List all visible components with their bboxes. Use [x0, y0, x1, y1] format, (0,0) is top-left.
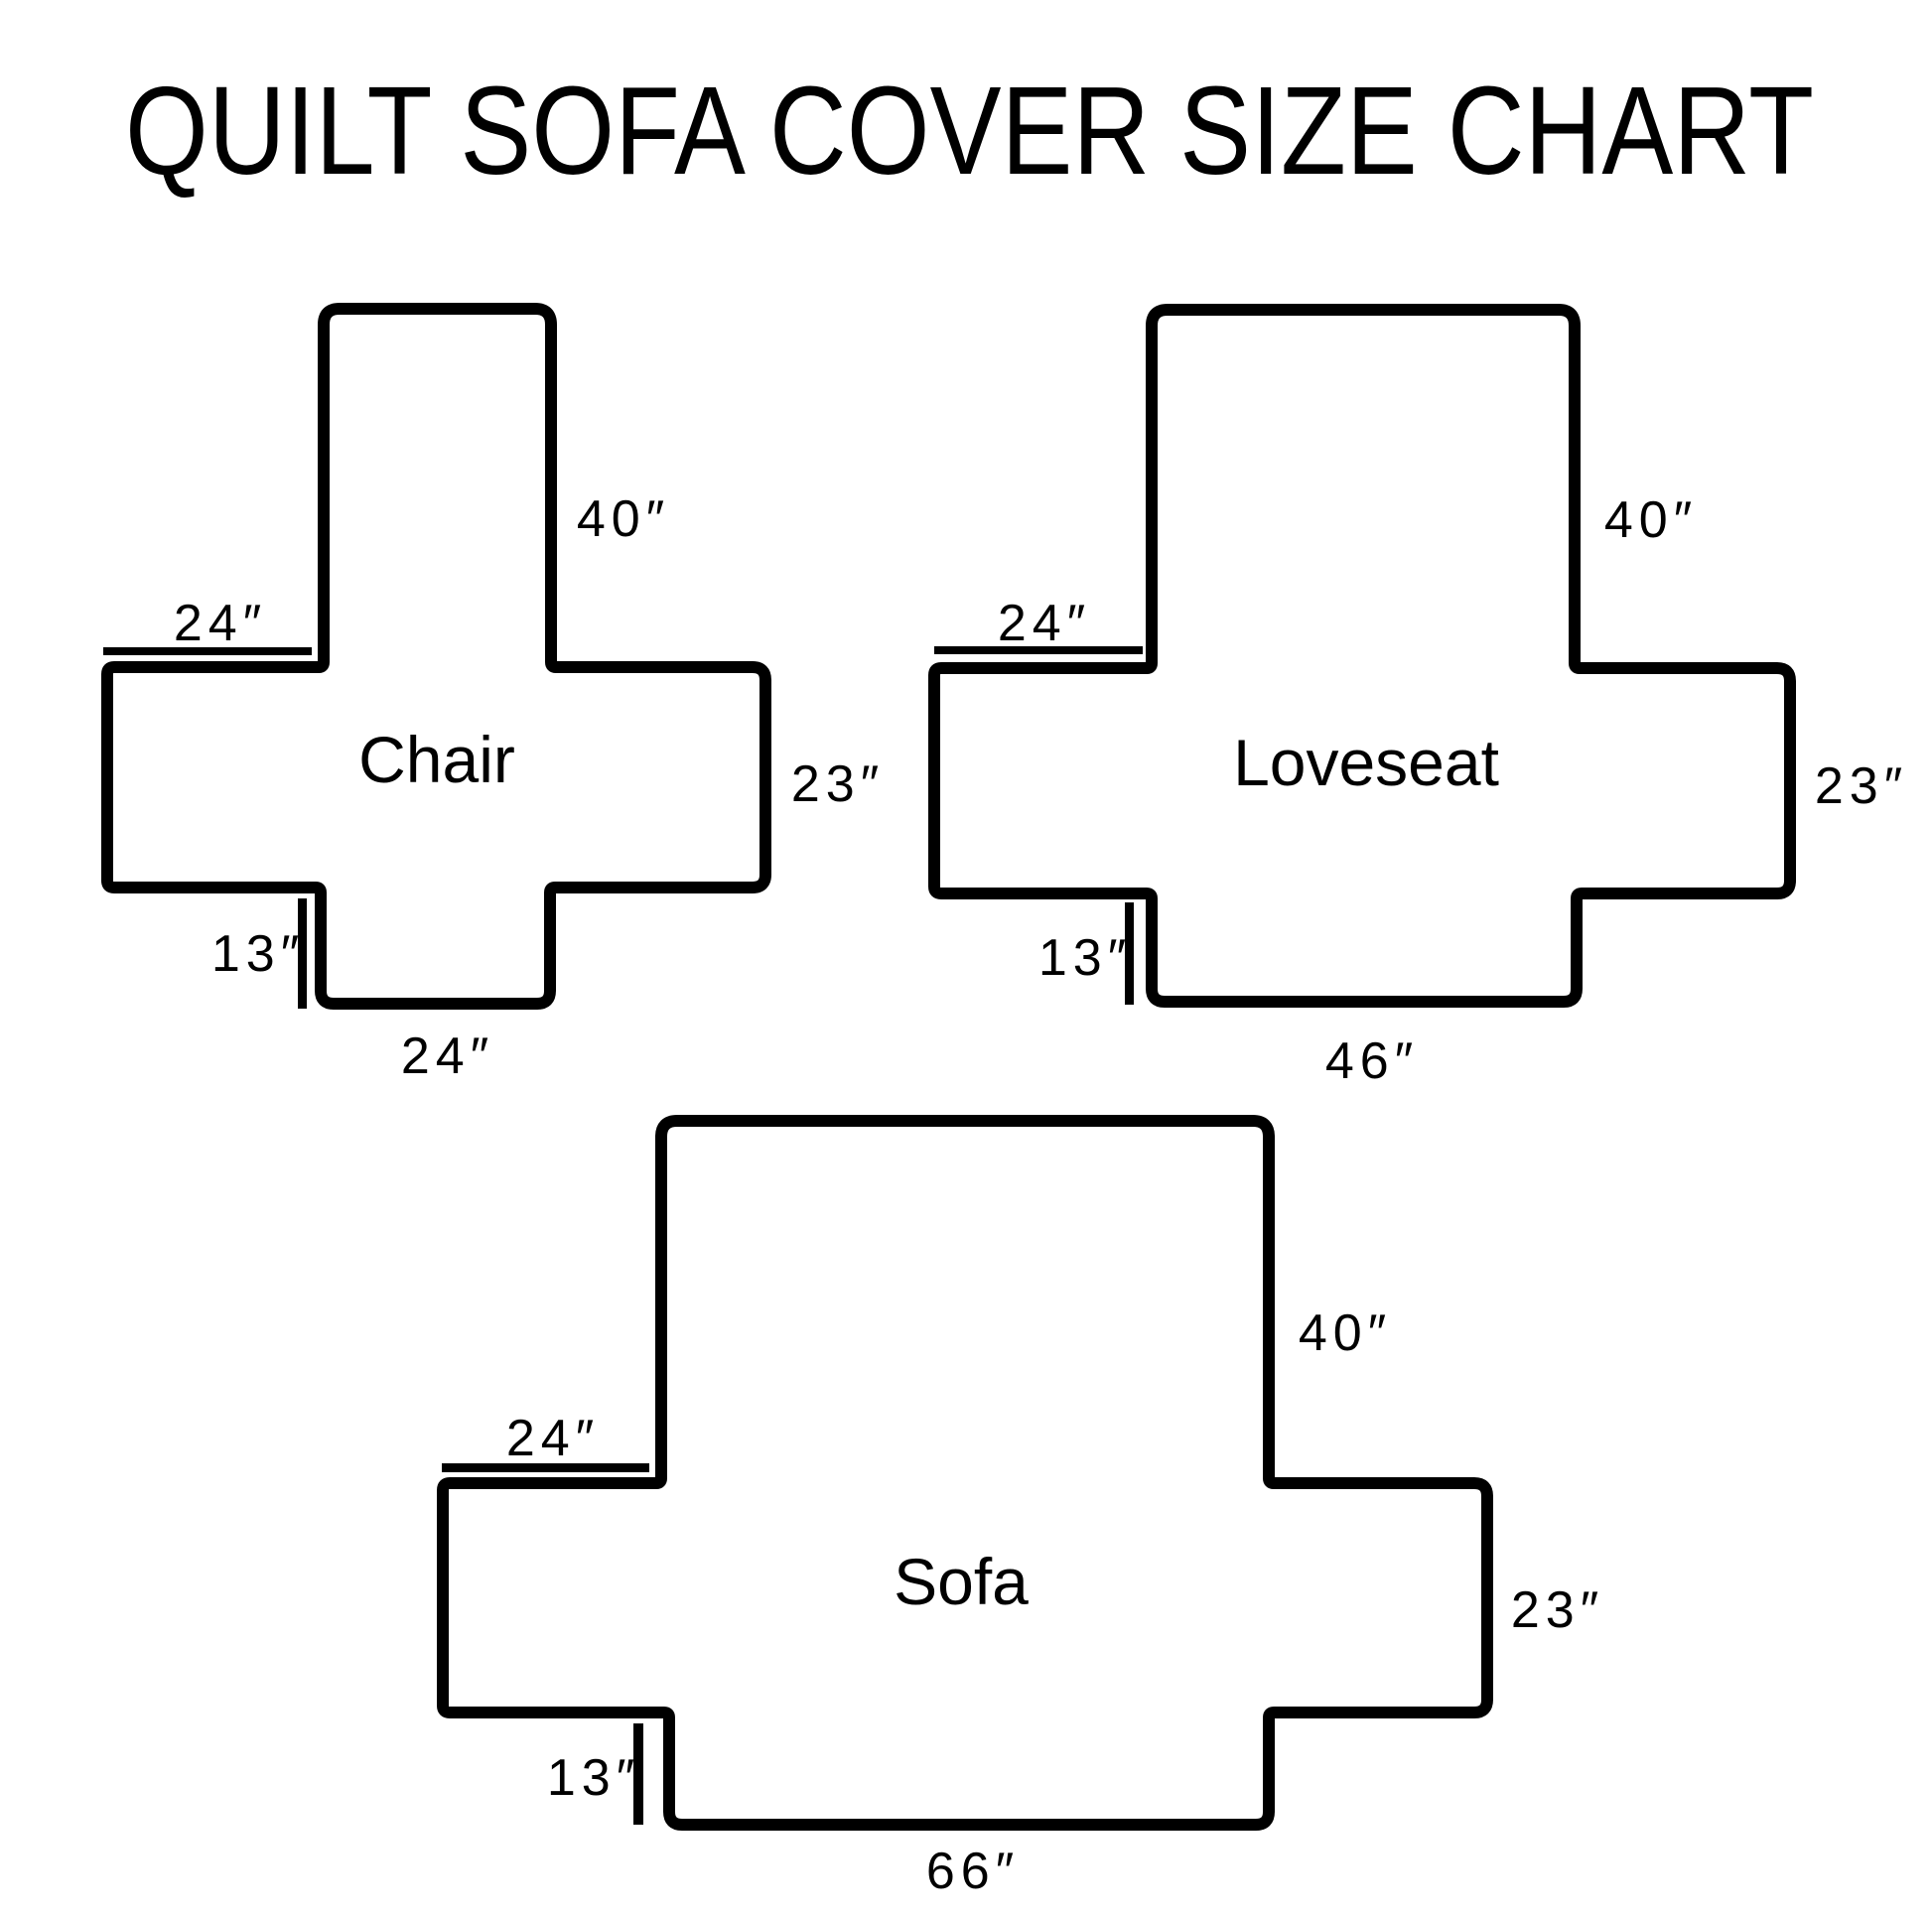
svg-text:40″: 40″	[1604, 491, 1698, 549]
svg-text:66″: 66″	[926, 1843, 1020, 1900]
svg-text:24″: 24″	[506, 1410, 600, 1467]
svg-text:23″: 23″	[1815, 757, 1908, 815]
svg-text:13″: 13″	[1038, 929, 1132, 987]
svg-text:13″: 13″	[547, 1749, 640, 1807]
svg-text:46″: 46″	[1325, 1032, 1419, 1090]
svg-text:Chair: Chair	[358, 723, 515, 796]
svg-text:QUILT SOFA COVER SIZE CHART: QUILT SOFA COVER SIZE CHART	[125, 61, 1814, 201]
svg-text:40″: 40″	[577, 490, 670, 548]
svg-text:Loveseat: Loveseat	[1233, 726, 1499, 799]
svg-text:24″: 24″	[401, 1027, 494, 1085]
svg-text:23″: 23″	[1511, 1581, 1604, 1639]
svg-text:24″: 24″	[998, 595, 1091, 652]
svg-text:13″: 13″	[211, 925, 305, 983]
svg-text:23″: 23″	[791, 755, 885, 813]
svg-text:40″: 40″	[1299, 1304, 1392, 1362]
svg-text:Sofa: Sofa	[894, 1545, 1029, 1618]
svg-text:24″: 24″	[174, 595, 267, 652]
